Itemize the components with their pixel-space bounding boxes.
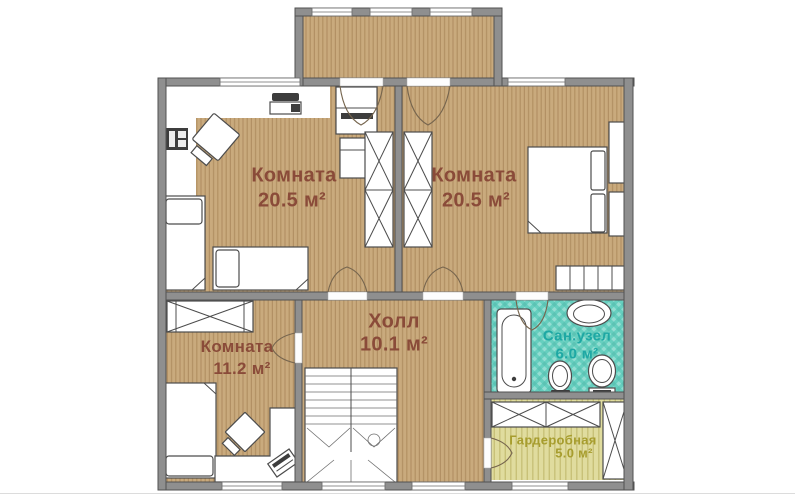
bathroom-area: 6.0 м²	[556, 346, 599, 363]
bidet	[549, 361, 572, 396]
wardrobe-cabinet-side	[603, 402, 627, 479]
bathroom-name: Сан.узел	[543, 328, 611, 345]
printer	[270, 93, 301, 114]
room-top-left-name: Комната	[251, 165, 336, 188]
room-bottom-left-area: 11.2 м²	[213, 359, 270, 379]
hall-area: 10.1 м²	[360, 334, 428, 357]
single-bed-horizontal	[213, 247, 308, 290]
single-bed-vertical	[163, 196, 205, 290]
electrical-panel	[166, 128, 188, 150]
room-top-left-area: 20.5 м²	[258, 190, 326, 213]
floor-plan-drawing	[0, 0, 795, 496]
wardrobe-cabinet-top	[167, 301, 253, 332]
double-bed	[528, 147, 607, 233]
floor-plan: Комната 20.5 м² Комната 20.5 м² Комната …	[0, 0, 795, 496]
wardrobe-cabinet-long	[492, 402, 600, 427]
wardrobe-cabinet-right	[404, 132, 432, 247]
dresser	[556, 266, 627, 290]
staircase	[305, 368, 397, 484]
room-bottom-left-name: Комната	[201, 337, 274, 357]
room-top-right-name: Комната	[431, 165, 516, 188]
single-bed	[163, 383, 216, 478]
room-top-right-area: 20.5 м²	[442, 190, 510, 213]
bathtub	[497, 309, 531, 393]
wardrobe-room-area: 5.0 м²	[555, 446, 592, 461]
bottom-divider	[0, 493, 795, 494]
wardrobe-cabinet-left	[365, 132, 393, 247]
bay-floor	[303, 16, 494, 78]
hall-name: Холл	[368, 311, 419, 334]
